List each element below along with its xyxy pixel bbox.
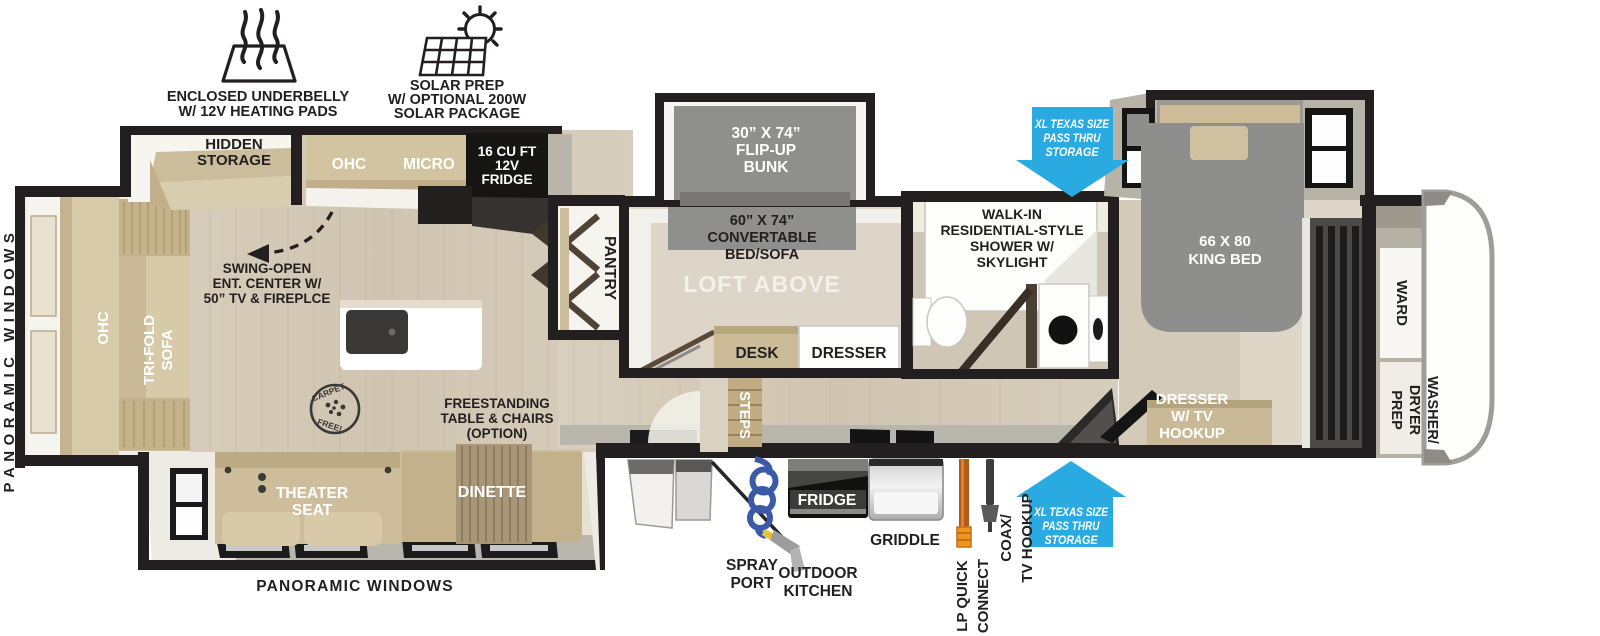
- svg-text:SOFA: SOFA: [159, 329, 176, 370]
- svg-text:SPRAY: SPRAY: [726, 557, 779, 574]
- svg-text:PANORAMIC WINDOWS: PANORAMIC WINDOWS: [1, 228, 18, 493]
- svg-text:PANORAMIC WINDOWS: PANORAMIC WINDOWS: [256, 578, 454, 595]
- svg-text:WASHER/: WASHER/: [1424, 376, 1440, 444]
- svg-text:HOOKUP: HOOKUP: [1159, 425, 1225, 442]
- svg-text:FRIDGE: FRIDGE: [481, 172, 532, 187]
- svg-text:CONNECT: CONNECT: [975, 559, 992, 633]
- svg-text:STORAGE: STORAGE: [1046, 147, 1099, 159]
- svg-text:50” TV & FIREPLCE: 50” TV & FIREPLCE: [204, 291, 331, 306]
- svg-text:XL TEXAS SIZE: XL TEXAS SIZE: [1034, 119, 1109, 131]
- svg-text:TRI-FOLD: TRI-FOLD: [141, 315, 158, 385]
- svg-text:LOFT ABOVE: LOFT ABOVE: [683, 271, 840, 297]
- svg-text:DRESSER: DRESSER: [1156, 391, 1229, 408]
- svg-text:60” X 74”: 60” X 74”: [730, 213, 795, 229]
- svg-text:ENT. CENTER W/: ENT. CENTER W/: [213, 276, 322, 291]
- svg-text:MICRO: MICRO: [403, 156, 455, 173]
- svg-text:WARD: WARD: [1393, 280, 1410, 326]
- svg-text:DESK: DESK: [735, 345, 779, 362]
- svg-text:30” X 74”: 30” X 74”: [732, 125, 801, 142]
- svg-text:PASS THRU: PASS THRU: [1043, 521, 1101, 533]
- svg-text:SHOWER W/: SHOWER W/: [970, 238, 1054, 254]
- svg-text:OHC: OHC: [332, 156, 366, 173]
- svg-text:SOLAR PACKAGE: SOLAR PACKAGE: [394, 106, 521, 122]
- svg-text:SKYLIGHT: SKYLIGHT: [977, 254, 1048, 270]
- svg-text:KITCHEN: KITCHEN: [784, 583, 853, 600]
- svg-text:OHC: OHC: [95, 311, 112, 345]
- svg-text:LP QUICK: LP QUICK: [954, 560, 971, 632]
- svg-text:FLIP-UP: FLIP-UP: [736, 142, 796, 159]
- svg-text:STEPS: STEPS: [736, 391, 752, 439]
- svg-text:STORAGE: STORAGE: [1045, 535, 1098, 547]
- svg-text:RESIDENTIAL-STYLE: RESIDENTIAL-STYLE: [940, 222, 1083, 238]
- svg-text:TABLE & CHAIRS: TABLE & CHAIRS: [441, 411, 554, 426]
- svg-text:(OPTION): (OPTION): [467, 426, 528, 441]
- svg-text:COAX/: COAX/: [998, 513, 1015, 561]
- svg-text:XL TEXAS SIZE: XL TEXAS SIZE: [1033, 507, 1108, 519]
- svg-text:THEATER: THEATER: [276, 485, 348, 502]
- svg-text:FREESTANDING: FREESTANDING: [444, 396, 550, 411]
- svg-text:66 X 80: 66 X 80: [1199, 233, 1251, 250]
- svg-text:FRIDGE: FRIDGE: [798, 492, 857, 509]
- svg-text:OUTDOOR: OUTDOOR: [778, 565, 857, 582]
- svg-text:16 CU FT: 16 CU FT: [478, 144, 537, 159]
- svg-text:W/ 12V HEATING PADS: W/ 12V HEATING PADS: [179, 104, 338, 120]
- svg-text:PREP: PREP: [1388, 390, 1404, 430]
- svg-text:DRESSER: DRESSER: [812, 345, 887, 362]
- svg-text:HIDDEN: HIDDEN: [205, 136, 263, 153]
- svg-text:SEAT: SEAT: [292, 502, 333, 519]
- svg-text:DINETTE: DINETTE: [458, 484, 527, 501]
- svg-text:SWING-OPEN: SWING-OPEN: [223, 261, 312, 276]
- svg-text:KING BED: KING BED: [1188, 251, 1262, 268]
- svg-text:STORAGE: STORAGE: [197, 152, 271, 169]
- svg-text:CONVERTABLE: CONVERTABLE: [707, 230, 817, 246]
- svg-text:WALK-IN: WALK-IN: [982, 206, 1042, 222]
- svg-text:GRIDDLE: GRIDDLE: [870, 532, 940, 549]
- svg-text:BUNK: BUNK: [744, 159, 790, 176]
- svg-text:12V: 12V: [495, 158, 519, 173]
- svg-text:TV HOOKUP: TV HOOKUP: [1019, 493, 1036, 582]
- svg-text:DRYER: DRYER: [1406, 385, 1422, 436]
- svg-text:W/ TV: W/ TV: [1171, 408, 1213, 425]
- svg-text:BED/SOFA: BED/SOFA: [725, 247, 800, 263]
- svg-text:PASS THRU: PASS THRU: [1044, 133, 1102, 145]
- svg-text:PANTRY: PANTRY: [601, 236, 618, 300]
- svg-text:PORT: PORT: [730, 575, 774, 592]
- svg-text:ENCLOSED UNDERBELLY: ENCLOSED UNDERBELLY: [167, 89, 350, 105]
